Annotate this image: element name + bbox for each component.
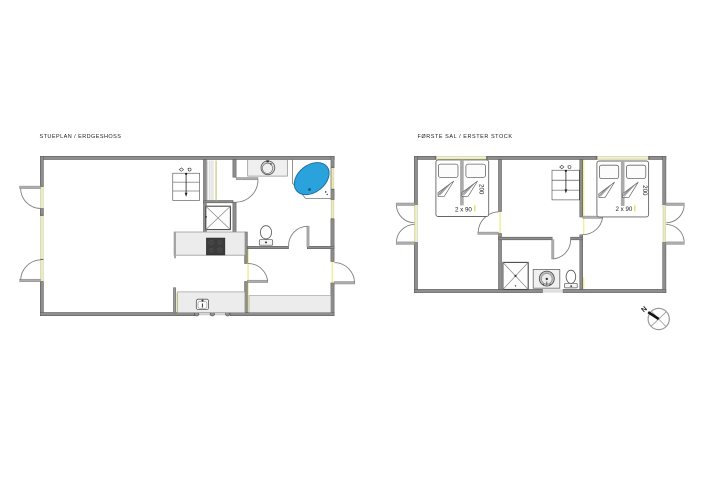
- svg-text:N: N: [640, 306, 648, 315]
- svg-text:STUEPLAN / ERDGESHOSS: STUEPLAN / ERDGESHOSS: [40, 134, 122, 140]
- svg-text:2 x 90: 2 x 90: [455, 206, 472, 213]
- svg-text:FØRSTE SAL / ERSTER STOCK: FØRSTE SAL / ERSTER STOCK: [418, 134, 513, 140]
- svg-text:200: 200: [478, 184, 485, 195]
- svg-text:200: 200: [641, 185, 648, 196]
- svg-text:2 x 90: 2 x 90: [615, 206, 632, 213]
